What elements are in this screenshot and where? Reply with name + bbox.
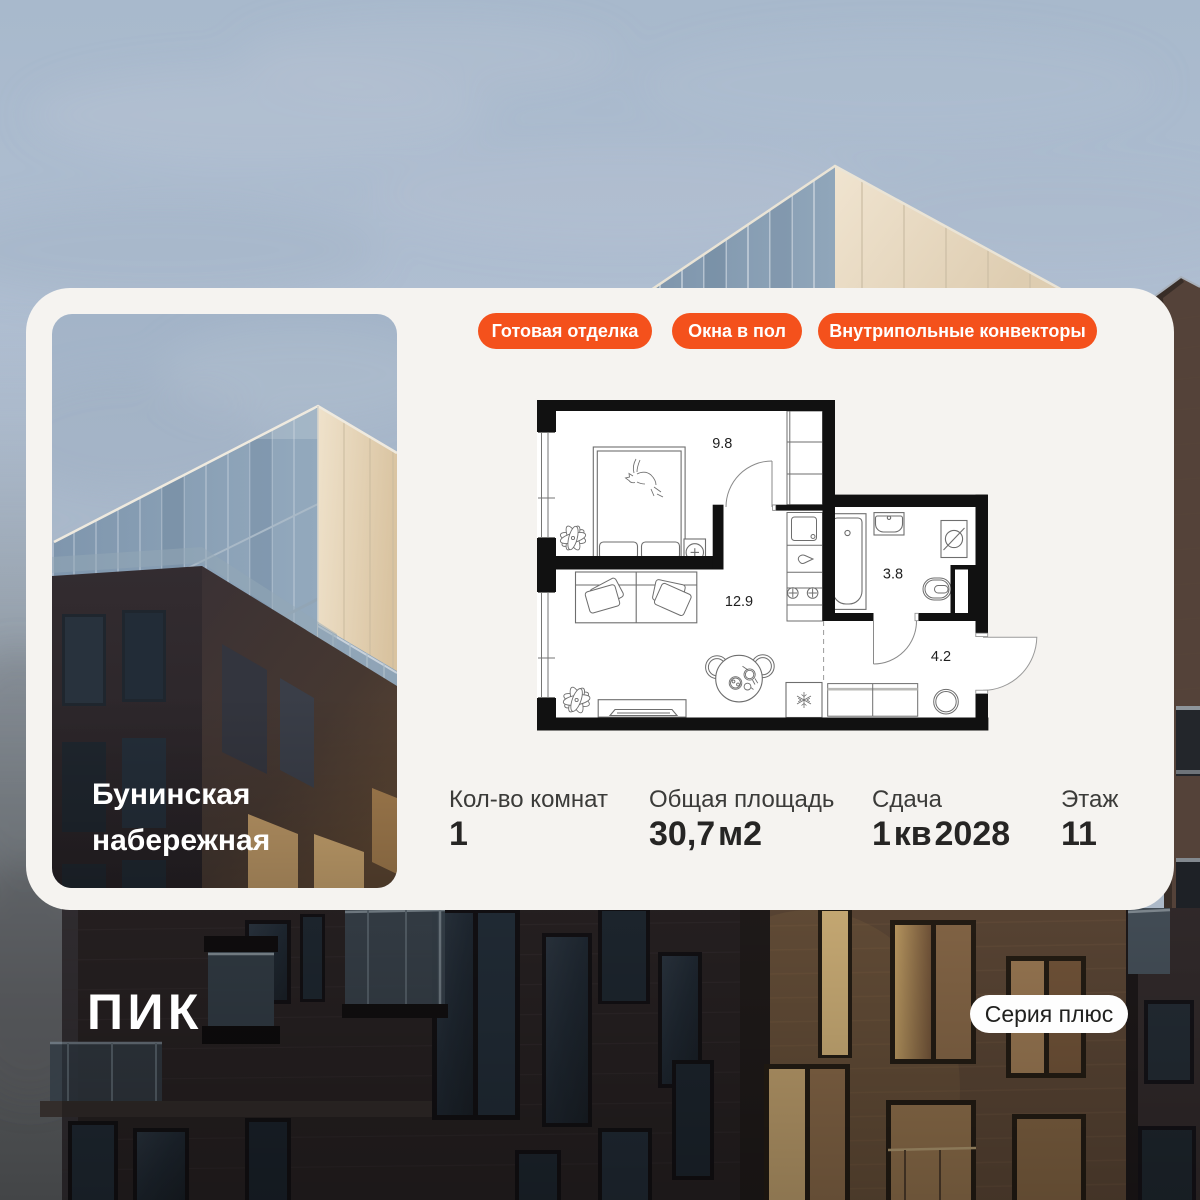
svg-text:9.8: 9.8 xyxy=(712,436,732,452)
svg-text:4.2: 4.2 xyxy=(931,649,951,665)
svg-text:3.8: 3.8 xyxy=(883,567,903,583)
svg-text:12.9: 12.9 xyxy=(725,594,753,610)
